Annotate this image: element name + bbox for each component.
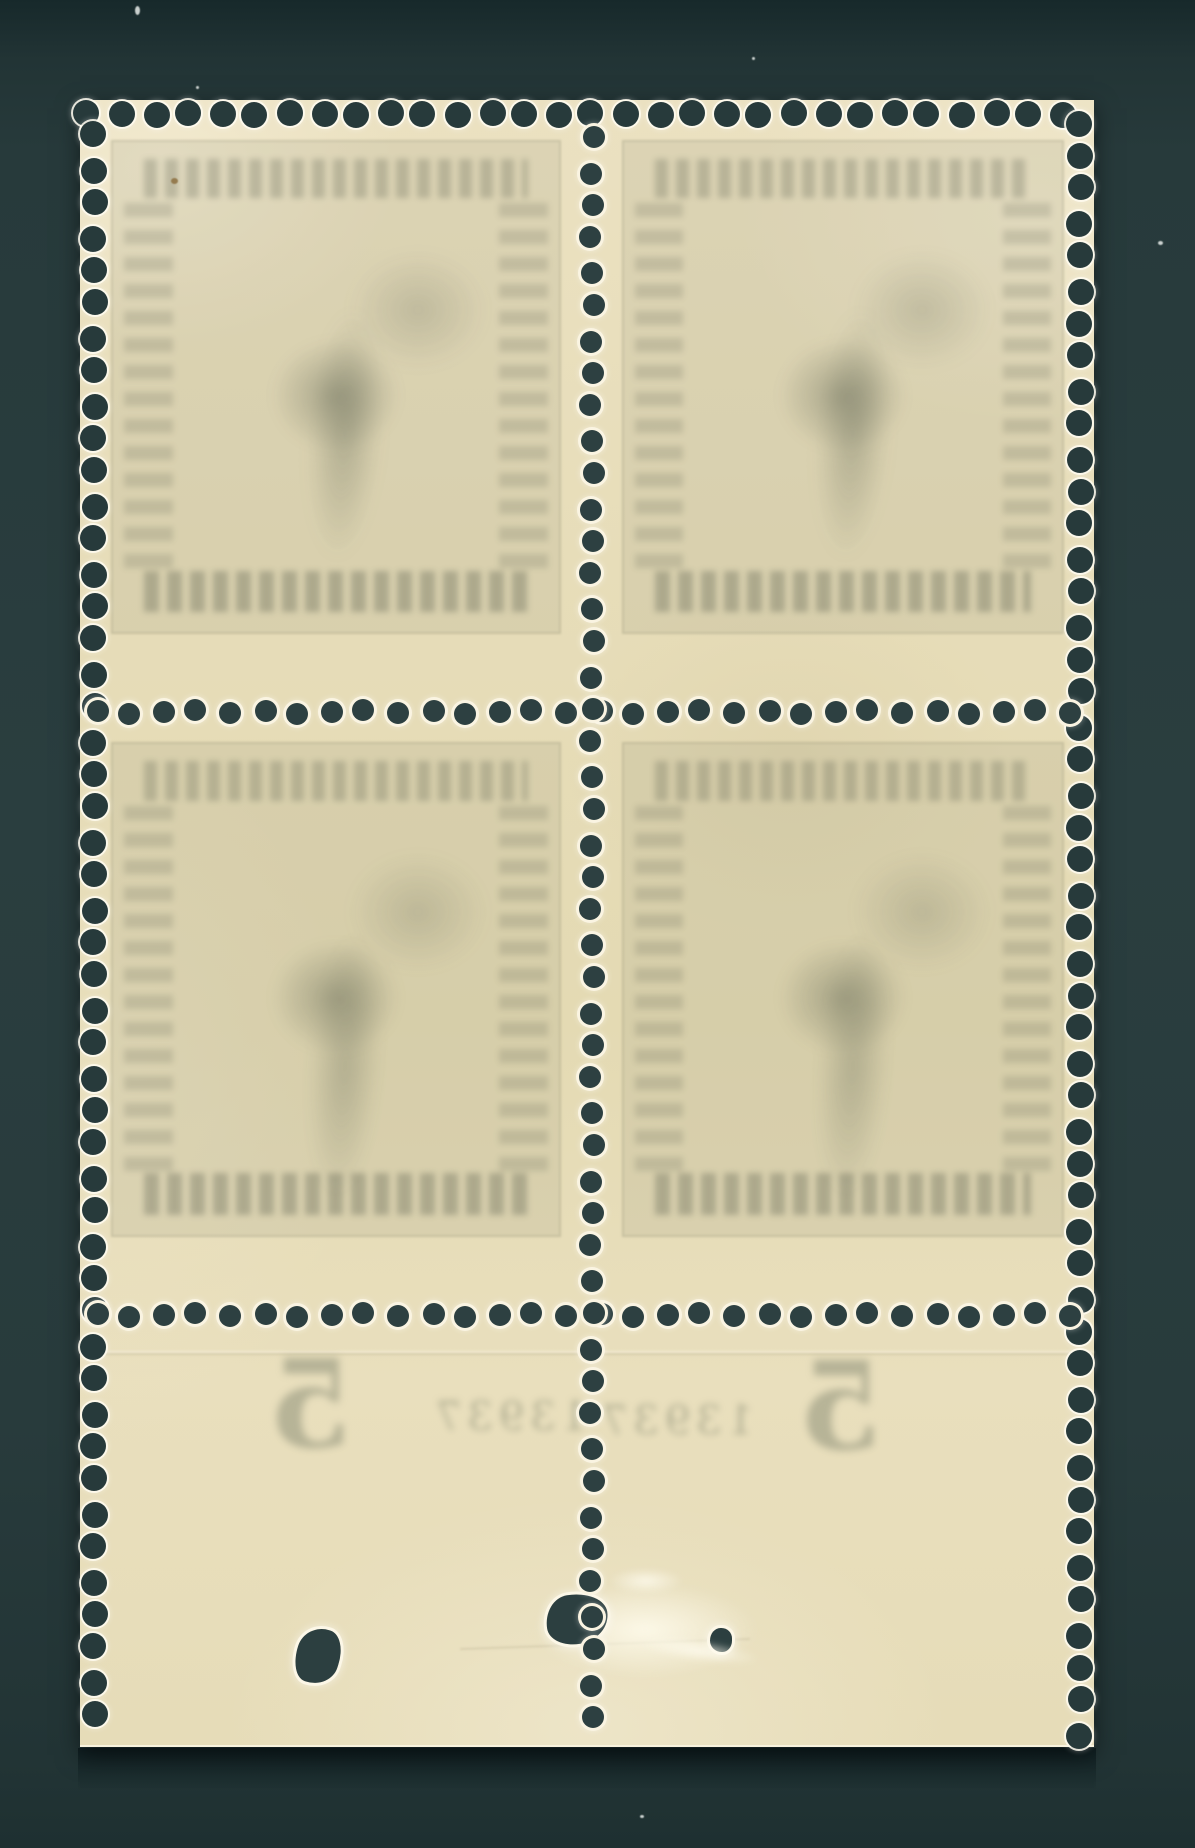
edge-bite-left xyxy=(80,326,106,352)
edge-bite-top xyxy=(679,100,705,126)
perforation-column-hole xyxy=(582,1538,604,1560)
perforation-row-hole xyxy=(255,700,277,722)
edge-bite-right xyxy=(1068,1082,1094,1108)
edge-bite-right xyxy=(1067,846,1093,872)
perforation-row-hole xyxy=(958,703,980,725)
perforation-column-hole xyxy=(579,562,601,584)
perforation-column-hole xyxy=(580,499,602,521)
perforation-row-hole xyxy=(520,1302,542,1324)
edge-bite-top xyxy=(277,100,303,126)
perforation-row-hole xyxy=(423,700,445,722)
edge-bite-left xyxy=(82,1097,108,1123)
edge-bite-right xyxy=(1066,1418,1092,1444)
edge-bite-top xyxy=(913,101,939,127)
perforation-column-hole xyxy=(581,1270,603,1292)
perforation-column-hole xyxy=(583,126,605,148)
perforation-column-hole xyxy=(582,1034,604,1056)
edge-bite-right xyxy=(1066,1518,1092,1544)
edge-bite-right xyxy=(1067,746,1093,772)
perforation-column-hole xyxy=(579,898,601,920)
edge-bite-left xyxy=(80,1433,106,1459)
perforation-row-hole xyxy=(153,1304,175,1326)
edge-bite-right xyxy=(1067,1655,1093,1681)
edge-bite-left xyxy=(80,1533,106,1559)
edge-bite-top xyxy=(781,100,807,126)
perforation-column-hole xyxy=(580,1675,602,1697)
perforation-column-hole xyxy=(580,1003,602,1025)
edge-bite-right xyxy=(1068,883,1094,909)
perforation-column-hole xyxy=(582,362,604,384)
edge-bite-right xyxy=(1068,983,1094,1009)
perforation-row-hole xyxy=(352,1302,374,1324)
edge-bite-left xyxy=(81,257,107,283)
perforation-row-hole xyxy=(856,699,878,721)
perforation-row-hole xyxy=(118,1306,140,1328)
edge-bite-top xyxy=(546,102,572,128)
perforation-row-hole xyxy=(657,701,679,723)
perforation-row-hole xyxy=(657,1304,679,1326)
sheet-drop-shadow xyxy=(78,1748,1096,1790)
perforation-row-hole xyxy=(622,1306,644,1328)
edge-bite-top xyxy=(241,102,267,128)
edge-bite-right xyxy=(1066,111,1092,137)
perforation-row-hole xyxy=(927,700,949,722)
edge-bite-right xyxy=(1066,914,1092,940)
edge-bite-left xyxy=(81,1570,107,1596)
edge-bite-right xyxy=(1068,279,1094,305)
edge-bite-top xyxy=(511,101,537,127)
edge-bite-right xyxy=(1066,1119,1092,1145)
perforation-column-hole xyxy=(581,934,603,956)
background-speck xyxy=(752,57,755,60)
perforations xyxy=(80,100,1094,1745)
perforation-row-hole xyxy=(387,702,409,724)
edge-bite-left xyxy=(82,593,108,619)
perforation-row-hole xyxy=(555,1305,577,1327)
edge-bite-left xyxy=(81,1166,107,1192)
edge-bite-left xyxy=(82,1197,108,1223)
edge-bite-right xyxy=(1067,547,1093,573)
perforation-column-hole xyxy=(579,226,601,248)
edge-bite-top xyxy=(949,102,975,128)
perforation-row-hole xyxy=(825,701,847,723)
perforation-column-hole xyxy=(583,1134,605,1156)
perforation-column-hole xyxy=(582,194,604,216)
edge-bite-right xyxy=(1066,410,1092,436)
perforation-row-hole xyxy=(87,700,109,722)
perforation-column-hole xyxy=(583,798,605,820)
perforation-row-hole xyxy=(321,1304,343,1326)
edge-bite-left xyxy=(81,761,107,787)
edge-bite-right xyxy=(1068,379,1094,405)
edge-bite-left xyxy=(80,1029,106,1055)
perforation-row-hole xyxy=(723,1305,745,1327)
perforation-column-hole xyxy=(581,1606,603,1628)
perforation-row-hole xyxy=(723,702,745,724)
background-speck xyxy=(640,1815,644,1818)
perforation-row-hole xyxy=(286,703,308,725)
perforation-row-hole xyxy=(891,1305,913,1327)
edge-bite-right xyxy=(1066,1723,1092,1749)
perforation-row-hole xyxy=(993,701,1015,723)
perforation-column-hole xyxy=(582,1706,604,1728)
perforation-row-hole xyxy=(688,699,710,721)
perforation-column-hole xyxy=(581,598,603,620)
edge-bite-left xyxy=(82,998,108,1024)
edge-bite-right xyxy=(1066,1014,1092,1040)
edge-bite-left xyxy=(80,830,106,856)
perforation-row-hole xyxy=(790,703,812,725)
perforation-row-hole xyxy=(118,703,140,725)
scene-background: 5 13937 13937 5 xyxy=(0,0,1195,1848)
perforation-column-hole xyxy=(582,1370,604,1392)
perforation-column-hole xyxy=(580,163,602,185)
edge-bite-left xyxy=(81,662,107,688)
edge-bite-right xyxy=(1068,1182,1094,1208)
perforation-row-hole xyxy=(153,701,175,723)
edge-bite-right xyxy=(1066,1219,1092,1245)
edge-bite-right xyxy=(1068,1487,1094,1513)
perforation-row-hole xyxy=(520,699,542,721)
edge-bite-left xyxy=(81,861,107,887)
edge-bite-left xyxy=(81,457,107,483)
edge-bite-right xyxy=(1068,174,1094,200)
edge-bite-left xyxy=(82,898,108,924)
edge-bite-right xyxy=(1067,1051,1093,1077)
edge-bite-left xyxy=(80,1129,106,1155)
edge-bite-right xyxy=(1068,479,1094,505)
edge-bite-right xyxy=(1067,342,1093,368)
edge-bite-right xyxy=(1067,1350,1093,1376)
perforation-column-hole xyxy=(581,766,603,788)
edge-bite-top xyxy=(210,101,236,127)
edge-bite-left xyxy=(82,1601,108,1627)
edge-bite-right xyxy=(1068,678,1094,704)
perforation-row-hole xyxy=(286,1306,308,1328)
perforation-column-hole xyxy=(583,966,605,988)
edge-bite-top xyxy=(714,101,740,127)
edge-bite-top xyxy=(144,102,170,128)
perforation-row-hole xyxy=(891,702,913,724)
edge-bite-left xyxy=(82,1402,108,1428)
edge-bite-top xyxy=(175,100,201,126)
stamp-sheet: 5 13937 13937 5 xyxy=(80,100,1094,1747)
perforation-row-hole xyxy=(454,703,476,725)
perforation-row-hole xyxy=(321,701,343,723)
edge-bite-right xyxy=(1066,615,1092,641)
perforation-row-hole xyxy=(255,1303,277,1325)
edge-bite-left xyxy=(80,425,106,451)
edge-bite-left xyxy=(82,494,108,520)
perforation-column-hole xyxy=(579,1402,601,1424)
edge-bite-right xyxy=(1067,1250,1093,1276)
perforation-row-hole xyxy=(622,703,644,725)
edge-bite-top xyxy=(816,101,842,127)
edge-bite-left xyxy=(82,189,108,215)
perforation-column-hole xyxy=(581,1438,603,1460)
edge-bite-left xyxy=(82,793,108,819)
edge-bite-left xyxy=(81,1265,107,1291)
edge-bite-right xyxy=(1068,578,1094,604)
edge-bite-left xyxy=(81,1670,107,1696)
perforation-column-hole xyxy=(581,430,603,452)
edge-bite-left xyxy=(81,1066,107,1092)
edge-bite-right xyxy=(1067,647,1093,673)
perforation-column-hole xyxy=(583,630,605,652)
perforation-row-hole xyxy=(184,1302,206,1324)
edge-bite-left xyxy=(80,121,106,147)
perforation-column-hole xyxy=(580,835,602,857)
perforation-row-hole xyxy=(489,1304,511,1326)
edge-bite-left xyxy=(82,1502,108,1528)
edge-bite-left xyxy=(80,1633,106,1659)
edge-bite-top xyxy=(312,101,338,127)
edge-bite-top xyxy=(648,102,674,128)
edge-bite-left xyxy=(80,1234,106,1260)
perforation-row-hole xyxy=(825,1304,847,1326)
perforation-column-hole xyxy=(581,262,603,284)
edge-bite-top xyxy=(745,102,771,128)
perforation-column-hole xyxy=(579,730,601,752)
edge-bite-left xyxy=(81,562,107,588)
perforation-row-hole xyxy=(688,1302,710,1324)
perforation-row-hole xyxy=(352,699,374,721)
perforation-row-hole xyxy=(790,1306,812,1328)
perforation-column-hole xyxy=(580,667,602,689)
edge-bite-right xyxy=(1068,783,1094,809)
edge-bite-left xyxy=(81,1365,107,1391)
edge-bite-left xyxy=(80,226,106,252)
edge-bite-right xyxy=(1066,1623,1092,1649)
edge-bite-left xyxy=(82,289,108,315)
edge-bite-top xyxy=(577,100,603,126)
edge-bite-top xyxy=(343,102,369,128)
perforation-row-hole xyxy=(958,1306,980,1328)
edge-bite-top xyxy=(613,101,639,127)
edge-bite-top xyxy=(378,100,404,126)
edge-bite-left xyxy=(80,1334,106,1360)
edge-bite-left xyxy=(81,357,107,383)
edge-bite-left xyxy=(81,1465,107,1491)
edge-bite-right xyxy=(1067,1455,1093,1481)
edge-bite-top xyxy=(847,102,873,128)
perforation-column-hole xyxy=(583,1470,605,1492)
edge-bite-right xyxy=(1066,311,1092,337)
background-speck xyxy=(1158,241,1163,245)
perforation-row-hole xyxy=(1024,699,1046,721)
edge-bite-right xyxy=(1068,1387,1094,1413)
edge-bite-right xyxy=(1066,211,1092,237)
edge-bite-left xyxy=(80,730,106,756)
edge-bite-right xyxy=(1067,1555,1093,1581)
edge-bite-top xyxy=(480,100,506,126)
perforation-row-hole xyxy=(993,1304,1015,1326)
edge-bite-right xyxy=(1066,815,1092,841)
perforation-row-hole xyxy=(856,1302,878,1324)
perforation-row-hole xyxy=(423,1303,445,1325)
edge-bite-left xyxy=(80,929,106,955)
perforation-row-hole xyxy=(219,1305,241,1327)
perforation-column-hole xyxy=(580,1339,602,1361)
perforation-column-hole xyxy=(583,1638,605,1660)
edge-bite-right xyxy=(1067,447,1093,473)
perforation-column-hole xyxy=(580,331,602,353)
edge-bite-top xyxy=(445,102,471,128)
perforation-column-hole xyxy=(582,530,604,552)
perforation-column-hole xyxy=(581,1102,603,1124)
edge-bite-right xyxy=(1067,951,1093,977)
edge-bite-left xyxy=(81,961,107,987)
edge-bite-right xyxy=(1067,143,1093,169)
perforation-row-hole xyxy=(759,700,781,722)
edge-bite-top xyxy=(984,100,1010,126)
perforation-column-hole xyxy=(579,1570,601,1592)
edge-bite-right xyxy=(1066,510,1092,536)
perforation-column-hole xyxy=(582,866,604,888)
background-speck xyxy=(196,86,199,89)
perforation-row-hole xyxy=(555,702,577,724)
edge-bite-top xyxy=(109,101,135,127)
perforation-column-hole xyxy=(580,1507,602,1529)
edge-bite-left xyxy=(82,394,108,420)
edge-bite-right xyxy=(1067,1151,1093,1177)
perforation-column-hole xyxy=(583,462,605,484)
perforation-row-hole xyxy=(489,701,511,723)
perforation-row-hole xyxy=(454,1306,476,1328)
edge-bite-right xyxy=(1068,1686,1094,1712)
edge-bite-left xyxy=(82,1701,108,1727)
background-speck xyxy=(135,6,140,15)
edge-bite-right xyxy=(1067,242,1093,268)
edge-bite-left xyxy=(81,158,107,184)
perforation-column-hole xyxy=(583,294,605,316)
perforation-row-hole xyxy=(87,1303,109,1325)
edge-bite-left xyxy=(80,525,106,551)
perforation-column-hole xyxy=(579,1234,601,1256)
edge-bite-top xyxy=(1015,101,1041,127)
edge-bite-top xyxy=(882,100,908,126)
perforation-row-hole xyxy=(219,702,241,724)
perforation-column-hole xyxy=(579,394,601,416)
perforation-row-hole xyxy=(184,699,206,721)
perforation-column-hole xyxy=(580,1171,602,1193)
edge-bite-right xyxy=(1068,1586,1094,1612)
perforation-row-hole xyxy=(759,1303,781,1325)
perforation-row-hole xyxy=(1024,1302,1046,1324)
perforation-row-hole xyxy=(387,1305,409,1327)
perforation-column-hole xyxy=(583,1302,605,1324)
perforation-row-hole xyxy=(927,1303,949,1325)
perforation-column-hole xyxy=(579,1066,601,1088)
edge-bite-top xyxy=(409,101,435,127)
perforation-column-hole xyxy=(582,1202,604,1224)
edge-bite-left xyxy=(80,625,106,651)
